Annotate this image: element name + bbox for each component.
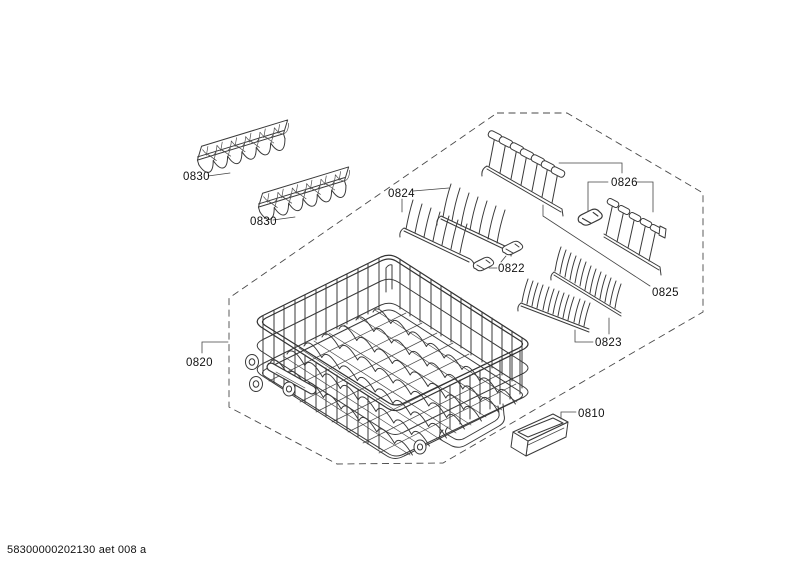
part-plate-rack-combs	[518, 247, 621, 332]
part-label-0824: 0824	[388, 188, 415, 200]
part-cup-rack-insert-upper	[194, 120, 296, 174]
document-code: 58300000202130 aet 008 a	[7, 544, 147, 556]
part-label-0810: 0810	[578, 408, 605, 420]
part-label-0830-lower: 0830	[250, 216, 277, 228]
part-label-0823: 0823	[595, 337, 622, 349]
part-label-0826: 0826	[611, 177, 638, 189]
part-lower-basket	[246, 255, 529, 458]
part-storage-tray	[511, 414, 568, 456]
part-tine-row-small	[604, 198, 666, 275]
part-label-0820: 0820	[186, 357, 213, 369]
part-cup-rack-insert-lower	[255, 167, 357, 221]
dashed-boundary-outline	[229, 113, 703, 464]
part-label-0825: 0825	[652, 287, 679, 299]
part-clip-0826	[578, 209, 602, 225]
part-folding-tine-row-pair	[400, 184, 511, 268]
part-tine-row-large	[482, 130, 566, 216]
exploded-parts-diagram: 0830 0830 0824 0822 0826 0825 0823 0820 …	[0, 0, 800, 566]
diagram-artwork: 0830 0830 0824 0822 0826 0825 0823 0820 …	[0, 0, 800, 566]
part-label-0822: 0822	[498, 263, 525, 275]
part-label-0830-upper: 0830	[183, 171, 210, 183]
